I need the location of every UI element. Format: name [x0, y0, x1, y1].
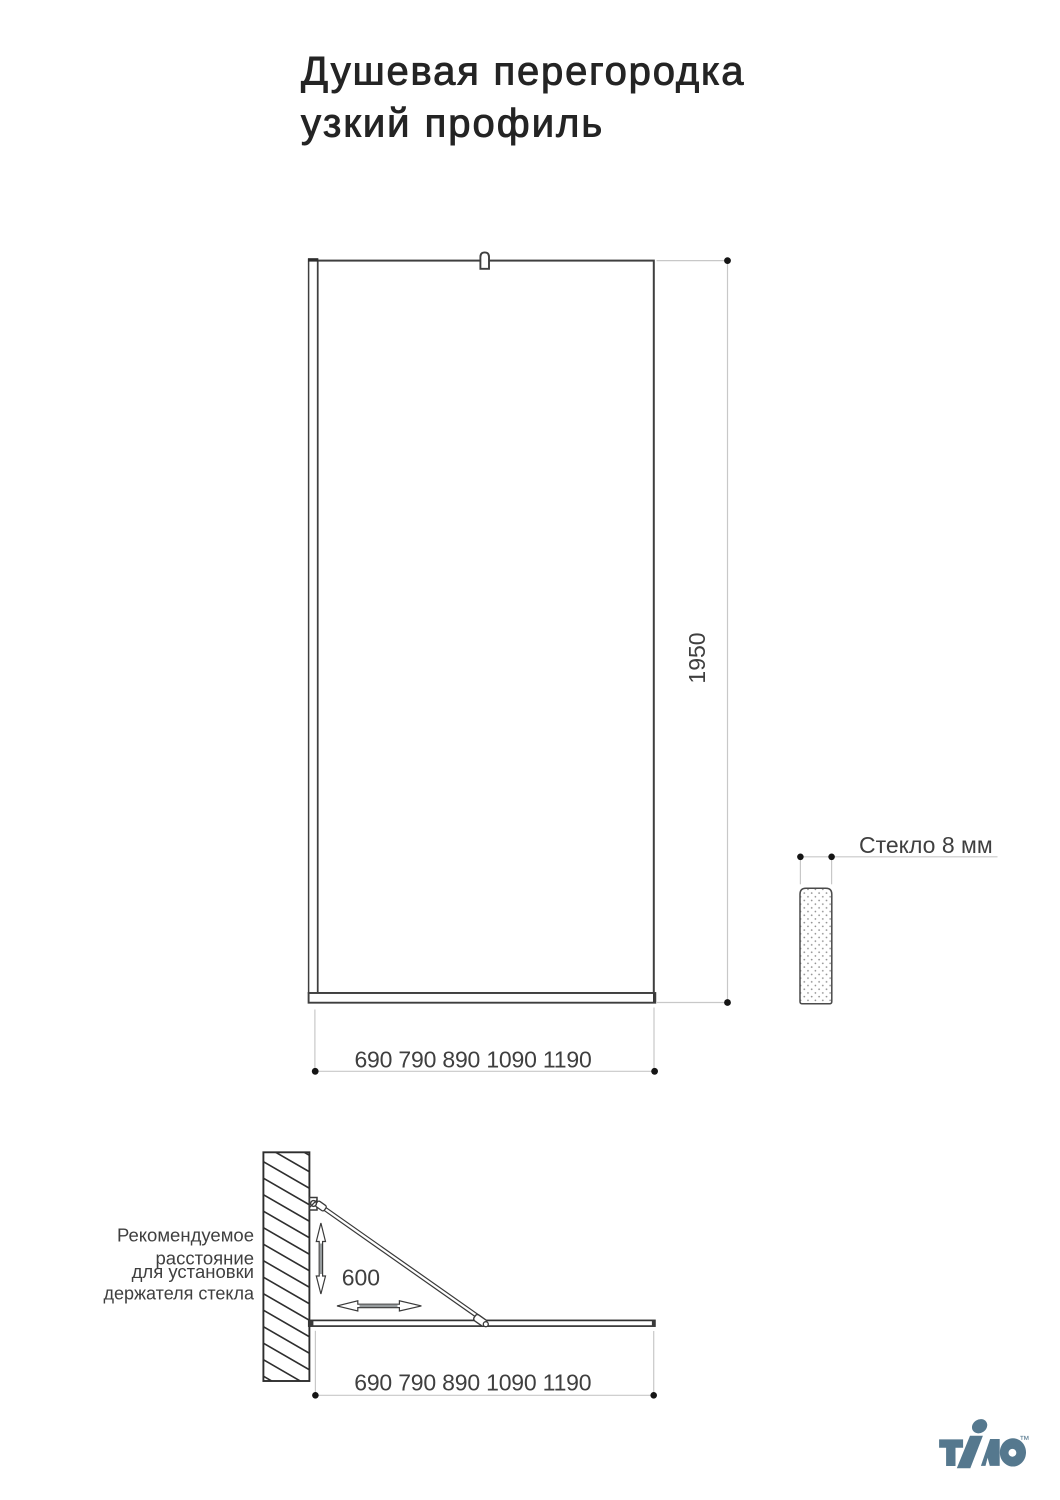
svg-text:Рекомендуемое: Рекомендуемое — [117, 1224, 254, 1245]
svg-text:690 790 890 1090 1190: 690 790 890 1090 1190 — [354, 1370, 591, 1396]
svg-text:600: 600 — [342, 1265, 380, 1291]
svg-text:1950: 1950 — [684, 632, 710, 683]
svg-text:™: ™ — [1019, 1434, 1030, 1446]
svg-text:для установки: для установки — [132, 1261, 254, 1282]
svg-text:Стекло 8 мм: Стекло 8 мм — [859, 832, 993, 858]
svg-text:держателя стекла: держателя стекла — [103, 1284, 255, 1304]
svg-text:690 790 890 1090 1190: 690 790 890 1090 1190 — [354, 1046, 591, 1072]
svg-text:узкий профиль: узкий профиль — [301, 102, 604, 146]
svg-text:Душевая перегородка: Душевая перегородка — [301, 50, 745, 94]
